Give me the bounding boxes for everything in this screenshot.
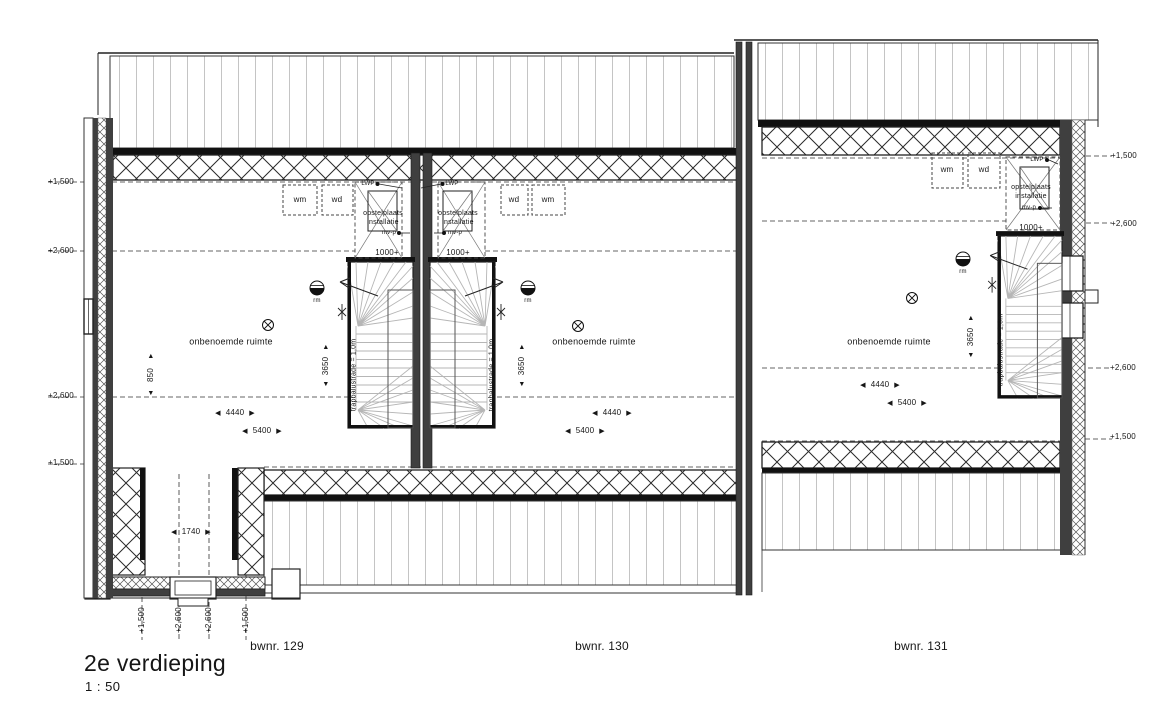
dim-arrow-down-icon: ▼ <box>322 381 329 388</box>
ventilation-label-129: mv-p <box>382 230 396 236</box>
dim-1740-label: 1740 <box>182 528 201 536</box>
dim-850: ▲ 850 ▼ <box>144 353 158 397</box>
dim-3650-label: 3650 <box>518 357 526 376</box>
installation-label-129: opstelplaats installatie <box>354 209 412 227</box>
dim-4440-131: ◀ 4440 ▶ <box>860 381 900 389</box>
left-exterior-wall <box>84 118 113 598</box>
dim-5400-129: ◀ 5400 ▶ <box>242 427 282 435</box>
dim-arrow-left-icon: ◀ <box>171 529 177 536</box>
dim-arrow-down-icon: ▼ <box>147 390 154 397</box>
dim-4440-label: 4440 <box>603 409 622 417</box>
floor-plan-canvas: 2e verdieping 1 : 50 bwnr. 129 bwnr. 130… <box>0 0 1175 727</box>
dim-arrow-left-icon: ◀ <box>215 410 221 417</box>
level-label-left-4: +1,500 <box>48 459 74 467</box>
dim-arrow-left-icon: ◀ <box>887 400 893 407</box>
dim-arrow-right-icon: ▶ <box>894 382 900 389</box>
heatpump-label-131: LWP <box>1030 157 1043 163</box>
washer-label-130: wm <box>542 196 555 204</box>
page-title: 2e verdieping <box>84 650 226 677</box>
scale-label: 1 : 50 <box>85 679 121 694</box>
level-label-right-4: +1,500 <box>1110 433 1136 441</box>
dim-arrow-left-icon: ◀ <box>592 410 598 417</box>
dim-1740: ◀ 1740 ▶ <box>171 528 211 536</box>
dim-arrow-right-icon: ▶ <box>599 428 605 435</box>
level-label-bottom-3: +2,600 <box>205 607 213 633</box>
dryer-label-129: wd <box>332 196 343 204</box>
dim-arrow-right-icon: ▶ <box>249 410 255 417</box>
heatpump-label-130: LWP <box>445 181 458 187</box>
unit-label-129: bwnr. 129 <box>250 640 304 652</box>
headroom-label-129: 1000+ <box>375 249 398 257</box>
level-label-left-2: +2,600 <box>48 247 74 255</box>
dim-arrow-right-icon: ▶ <box>276 428 282 435</box>
room-label-131: onbenoemde ruimte <box>847 338 930 347</box>
dim-5400-label: 5400 <box>898 399 917 407</box>
right-exterior-wall <box>1057 120 1098 555</box>
dim-arrow-up-icon: ▲ <box>322 344 329 351</box>
headroom-label-131: 1000+ <box>1019 224 1042 232</box>
level-label-left-3: +2,600 <box>48 392 74 400</box>
level-label-bottom-1: +1,500 <box>138 607 146 633</box>
dim-arrow-right-icon: ▶ <box>205 529 211 536</box>
dim-arrow-left-icon: ◀ <box>860 382 866 389</box>
party-wall-130-131 <box>736 42 752 595</box>
dim-3650-130: ▲ 3650 ▼ <box>513 344 532 388</box>
washer-label-131: wm <box>941 166 954 174</box>
ventilation-label-131: mv-p <box>1022 205 1036 211</box>
level-label-right-3: +2,600 <box>1110 364 1136 372</box>
dim-3650-label: 3650 <box>967 328 975 347</box>
level-label-right-2: +2,600 <box>1111 220 1137 228</box>
balustrade-label-129: trapbalustrade = 1,0m <box>351 339 358 412</box>
level-label-right-1: +1,500 <box>1111 152 1137 160</box>
dim-5400-131: ◀ 5400 ▶ <box>887 399 927 407</box>
headroom-label-130: 1000+ <box>446 249 469 257</box>
level-label-left-1: +1,500 <box>48 178 74 186</box>
smoke-detector-label-130: rm <box>524 298 531 304</box>
level-label-bottom-4: +1,500 <box>242 607 250 633</box>
dim-4440-label: 4440 <box>226 409 245 417</box>
heatpump-label-129: LWP <box>361 181 374 187</box>
smoke-detector-label-129: rm <box>313 298 320 304</box>
dim-arrow-up-icon: ▲ <box>518 344 525 351</box>
balustrade-label-130: trapbalustrade = 1,0m <box>489 339 496 412</box>
dim-5400-label: 5400 <box>253 427 272 435</box>
dim-arrow-up-icon: ▲ <box>967 315 974 322</box>
dim-arrow-up-icon: ▲ <box>147 353 154 360</box>
dim-arrow-right-icon: ▶ <box>626 410 632 417</box>
dryer-label-131: wd <box>979 166 990 174</box>
dim-4440-129: ◀ 4440 ▶ <box>215 409 255 417</box>
dim-4440-label: 4440 <box>871 381 890 389</box>
party-wall-129-130 <box>411 153 432 468</box>
dim-arrow-down-icon: ▼ <box>967 352 974 359</box>
installation-label-131: opstelplaats installatie <box>1002 183 1060 201</box>
unit-label-131: bwnr. 131 <box>894 640 948 652</box>
ventilation-label-130: mv-p <box>448 230 462 236</box>
room-label-129: onbenoemde ruimte <box>189 338 272 347</box>
level-label-bottom-2: +2,600 <box>175 607 183 633</box>
dim-850-label: 850 <box>147 368 155 382</box>
balustrade-label-131: trapbalustrade = 1,0m <box>998 314 1005 387</box>
dim-arrow-left-icon: ◀ <box>565 428 571 435</box>
unit-label-130: bwnr. 130 <box>575 640 629 652</box>
dim-3650-129: ▲ 3650 ▼ <box>317 344 336 388</box>
dim-arrow-left-icon: ◀ <box>242 428 248 435</box>
dim-arrow-right-icon: ▶ <box>921 400 927 407</box>
dim-3650-label: 3650 <box>322 357 330 376</box>
dryer-label-130: wd <box>509 196 520 204</box>
roof-band-bottom-131 <box>762 442 1085 592</box>
dim-arrow-down-icon: ▼ <box>518 381 525 388</box>
dim-5400-130: ◀ 5400 ▶ <box>565 427 605 435</box>
dim-5400-label: 5400 <box>576 427 595 435</box>
dim-4440-130: ◀ 4440 ▶ <box>592 409 632 417</box>
roof-band-top-131 <box>734 40 1098 155</box>
dim-3650-131: ▲ 3650 ▼ <box>962 315 981 359</box>
washer-label-129: wm <box>294 196 307 204</box>
installation-label-130: opstelplaats installatie <box>429 209 487 227</box>
smoke-detector-label-131: rm <box>959 269 966 275</box>
room-label-130: onbenoemde ruimte <box>552 338 635 347</box>
